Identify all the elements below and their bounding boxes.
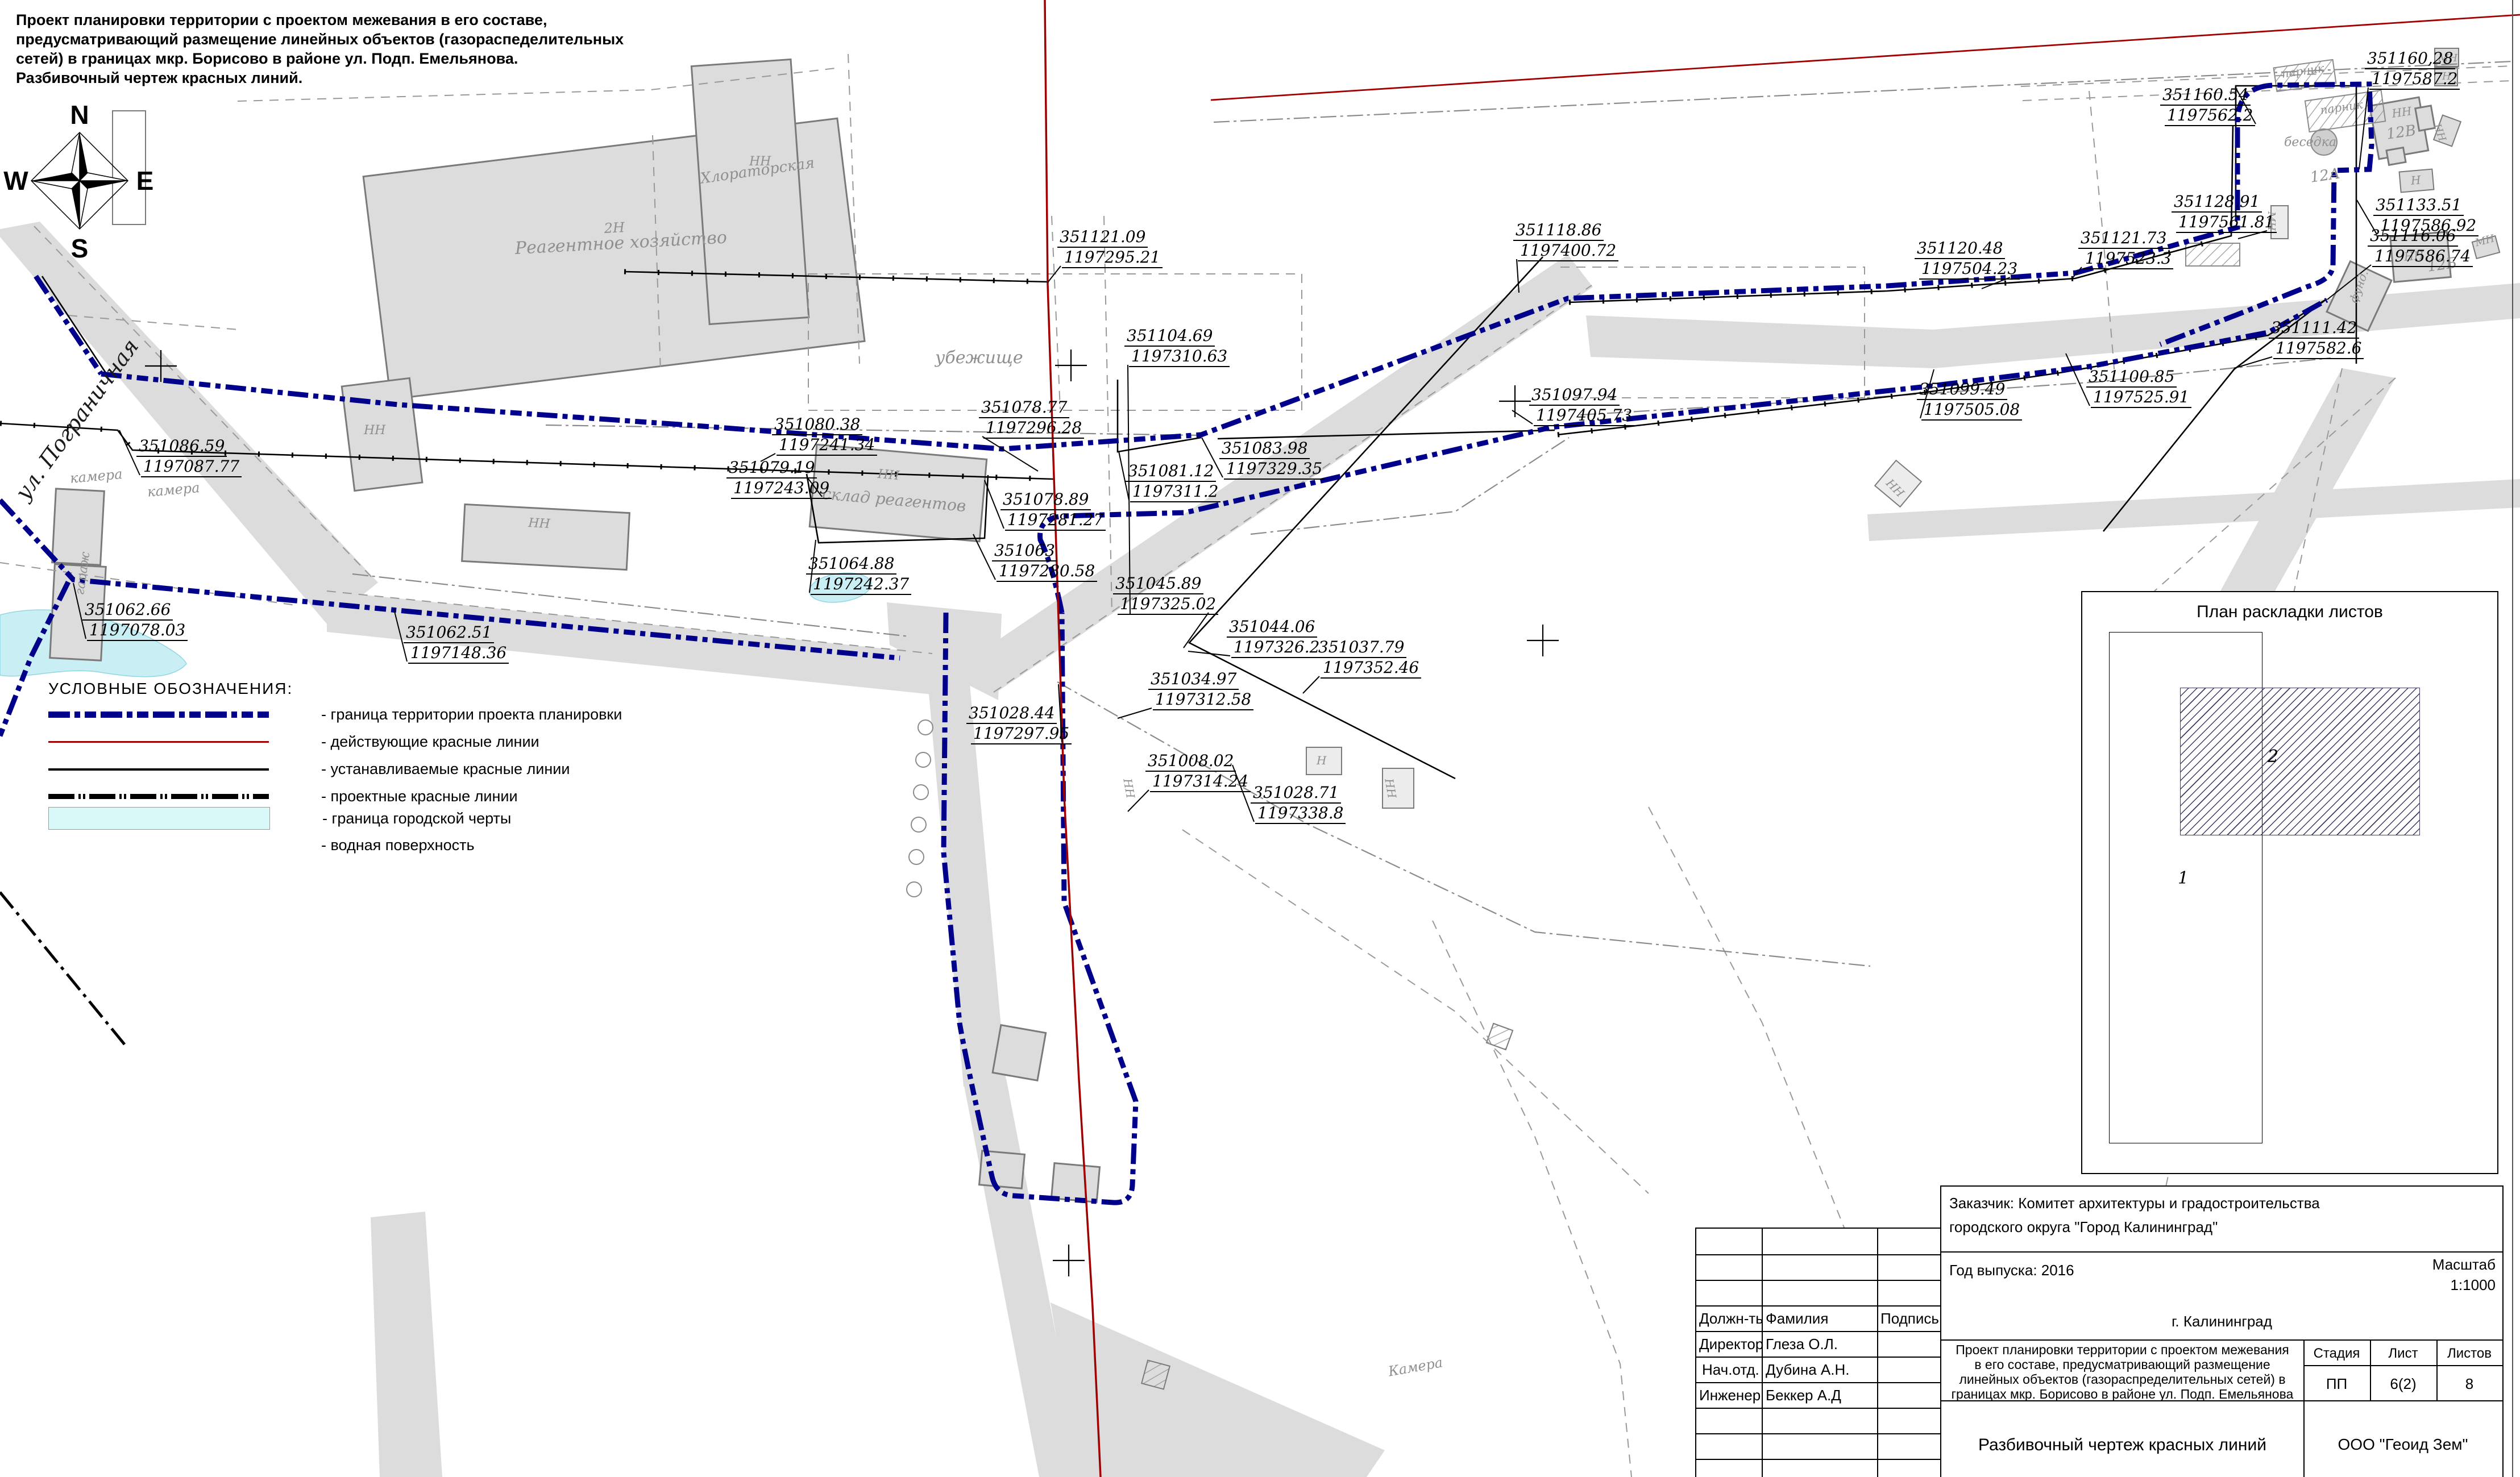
coord-label: 351062.661197078.03 <box>82 600 188 641</box>
coord-label: 351097.941197405.73 <box>1529 385 1634 426</box>
coord-label: 351044.061197326.2 <box>1227 617 1322 658</box>
map-feature-label: Н <box>2410 173 2421 187</box>
stamp-sheets-value: 8 <box>2436 1375 2502 1393</box>
design-red-line <box>0 892 128 1049</box>
stamp-doc-name: Разбивочный чертеж красных линий <box>1941 1436 2303 1455</box>
water-surface-swatch <box>48 834 269 856</box>
drawing-page: N S W E Проект планировки территории с п… <box>0 0 2520 1477</box>
leader-line <box>1188 651 1230 656</box>
coord-label: 351083.981197329.35 <box>1219 439 1325 480</box>
legend-item-city-limit: - граница городской черты <box>48 807 549 830</box>
stamp-col-signature: Подпись <box>1880 1310 1939 1328</box>
stamp-row-position: Инженер <box>1699 1387 1761 1404</box>
legend-header: УСЛОВНЫЕ ОБОЗНАЧЕНИЯ: <box>48 680 293 698</box>
leader-line <box>982 436 1038 471</box>
stamp-signature-table: Должн-ть Фамилия Подпись Директор Глеза … <box>1695 1228 1942 1477</box>
stamp-org: ООО "Геоид Зем" <box>2303 1436 2502 1454</box>
stamp-city: г. Калининград <box>1941 1313 2502 1330</box>
compass-w-label: W <box>3 166 28 195</box>
coord-label: 351121.731197523.3 <box>2078 228 2173 269</box>
coord-label: 351121.091197295.21 <box>1057 227 1163 268</box>
sheet-frame-line <box>2512 0 2513 1477</box>
established-red-line-swatch <box>48 768 269 771</box>
coord-label: 351128.911197561.81 <box>2172 192 2277 233</box>
coord-label: 351078.891197281.27 <box>1000 490 1106 531</box>
leader-line <box>1517 259 1519 293</box>
layout-sheet-1-number: 1 <box>2178 868 2189 888</box>
leader-line <box>1184 613 1209 648</box>
design-red-line-swatch <box>48 794 269 799</box>
stamp-scale-label: Масштаб <box>2432 1256 2496 1274</box>
existing-red-line-swatch <box>48 741 269 743</box>
map-feature-label: беседка <box>2284 135 2336 149</box>
compass-e-label: E <box>136 166 154 195</box>
legend: УСЛОВНЫЕ ОБОЗНАЧЕНИЯ: - граница территор… <box>48 680 549 862</box>
stamp-customer-line1: Заказчик: Комитет архитектуры и градостр… <box>1949 1195 2320 1212</box>
coord-label: 351100.851197525.91 <box>2086 367 2191 408</box>
map-feature-label: убежище <box>935 348 1023 368</box>
coord-label: 351160,281197587.2 <box>2365 49 2460 90</box>
stamp-col-position: Должн-ть <box>1699 1310 1763 1328</box>
legend-item-project-boundary: - граница территории проекта планировки <box>48 706 549 723</box>
coord-label: 3510631197280.58 <box>992 541 1097 582</box>
leader-line <box>1118 708 1152 718</box>
coord-label: 351008.021197314.24 <box>1145 751 1251 792</box>
coord-label: 351116.061197586.74 <box>2368 226 2473 267</box>
project-boundary-swatch <box>48 712 269 718</box>
layout-sheet-2-hatched <box>2180 688 2420 835</box>
stamp-year: Год выпуска: 2016 <box>1949 1262 2074 1279</box>
map-feature-label: НН <box>877 467 900 483</box>
compass-n-label: N <box>70 100 89 130</box>
coord-label: 351079.191197243.09 <box>726 458 832 499</box>
stamp-row-position: Нач.отд. <box>1702 1361 1759 1379</box>
legend-item-established-red-line: - устанавливаемые красные линии <box>48 760 549 778</box>
coord-label: 351104.691197310.63 <box>1124 326 1230 367</box>
legend-item-existing-red-line: - действующие красные линии <box>48 733 549 751</box>
stamp-stage-value: ПП <box>2303 1375 2370 1393</box>
layout-sheet-2-number: 2 <box>2268 747 2278 767</box>
leader-line <box>1303 676 1319 693</box>
drawing-title: Проект планировки территории с проектом … <box>16 10 687 88</box>
coord-label: 351099.491197505.08 <box>1917 380 2022 421</box>
coord-label: 351111.421197582.6 <box>2269 318 2364 359</box>
stamp-row-surname: Беккер А.Д <box>1766 1387 1841 1404</box>
layout-plan-title: План раскладки листов <box>2082 602 2497 622</box>
coord-label: 351118.861197400.72 <box>1513 220 1618 261</box>
compass-s-label: S <box>71 234 89 263</box>
map-feature-label: Н <box>1317 754 1326 767</box>
stamp-sheet-value: 6(2) <box>2370 1375 2436 1393</box>
coord-label: 351028.441197297.95 <box>966 704 1072 744</box>
stamp-project-name: Проект планировки территории с проектом … <box>1941 1342 2303 1401</box>
stamp-scale-value: 1:1000 <box>2450 1276 2496 1294</box>
coord-label: 351037.791197352.46 <box>1316 638 1421 679</box>
map-feature-label: НН <box>2391 104 2413 120</box>
sheet-layout-plan: План раскладки листов 2 1 <box>2081 591 2498 1174</box>
map-feature-label: НН <box>528 516 551 531</box>
coord-label: 351078.771197296.28 <box>979 398 1084 439</box>
coord-label: 351160.541197562.2 <box>2160 85 2255 126</box>
stamp-sheet-label: Лист <box>2370 1346 2436 1362</box>
coord-label: 351081.121197311.2 <box>1126 461 1220 502</box>
coord-label: 351045.891197325.02 <box>1113 574 1218 615</box>
coord-label: 351028.711197338.8 <box>1251 783 1346 824</box>
coord-label: 351086.591197087.77 <box>136 436 242 477</box>
coord-label: 351064.881197242.37 <box>806 554 911 595</box>
coord-label: 351120.481197504.23 <box>1915 239 2020 280</box>
coord-label: 351034.971197312.58 <box>1148 669 1253 710</box>
stamp-col-surname: Фамилия <box>1766 1310 1828 1328</box>
stamp-row-surname: Дубина А.Н. <box>1766 1361 1850 1379</box>
legend-item-water-surface: - водная поверхность <box>48 834 549 856</box>
legend-item-design-red-line: - проектные красные линии <box>48 788 549 805</box>
coord-label: 351062.511197148.36 <box>404 623 509 664</box>
stamp-main-block: Заказчик: Комитет архитектуры и градостр… <box>1940 1185 2504 1477</box>
city-limit-swatch <box>48 807 270 830</box>
coord-label: 351080.381197241.34 <box>772 415 877 456</box>
stamp-sheets-label: Листов <box>2436 1346 2502 1362</box>
stamp-stage-label: Стадия <box>2303 1346 2370 1362</box>
tree-symbols <box>907 720 933 897</box>
stamp-row-position: Директор <box>1699 1335 1763 1353</box>
map-feature-label: НН <box>364 423 385 438</box>
stamp-customer-line2: городского округа "Город Калининград" <box>1949 1218 2218 1236</box>
stamp-row-surname: Глеза О.Л. <box>1766 1335 1838 1353</box>
